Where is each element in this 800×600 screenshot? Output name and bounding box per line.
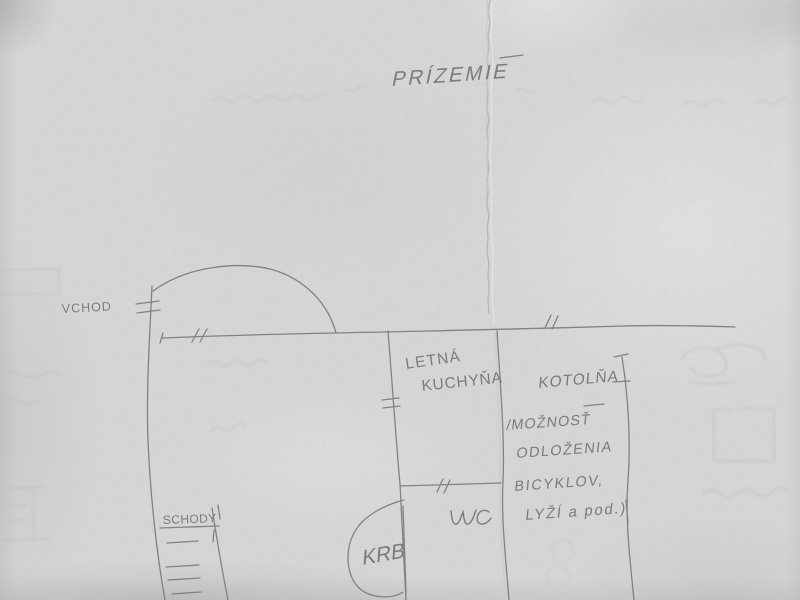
svg-text:VCHOD: VCHOD [61, 299, 112, 316]
svg-text:SCHODY: SCHODY [163, 511, 217, 527]
